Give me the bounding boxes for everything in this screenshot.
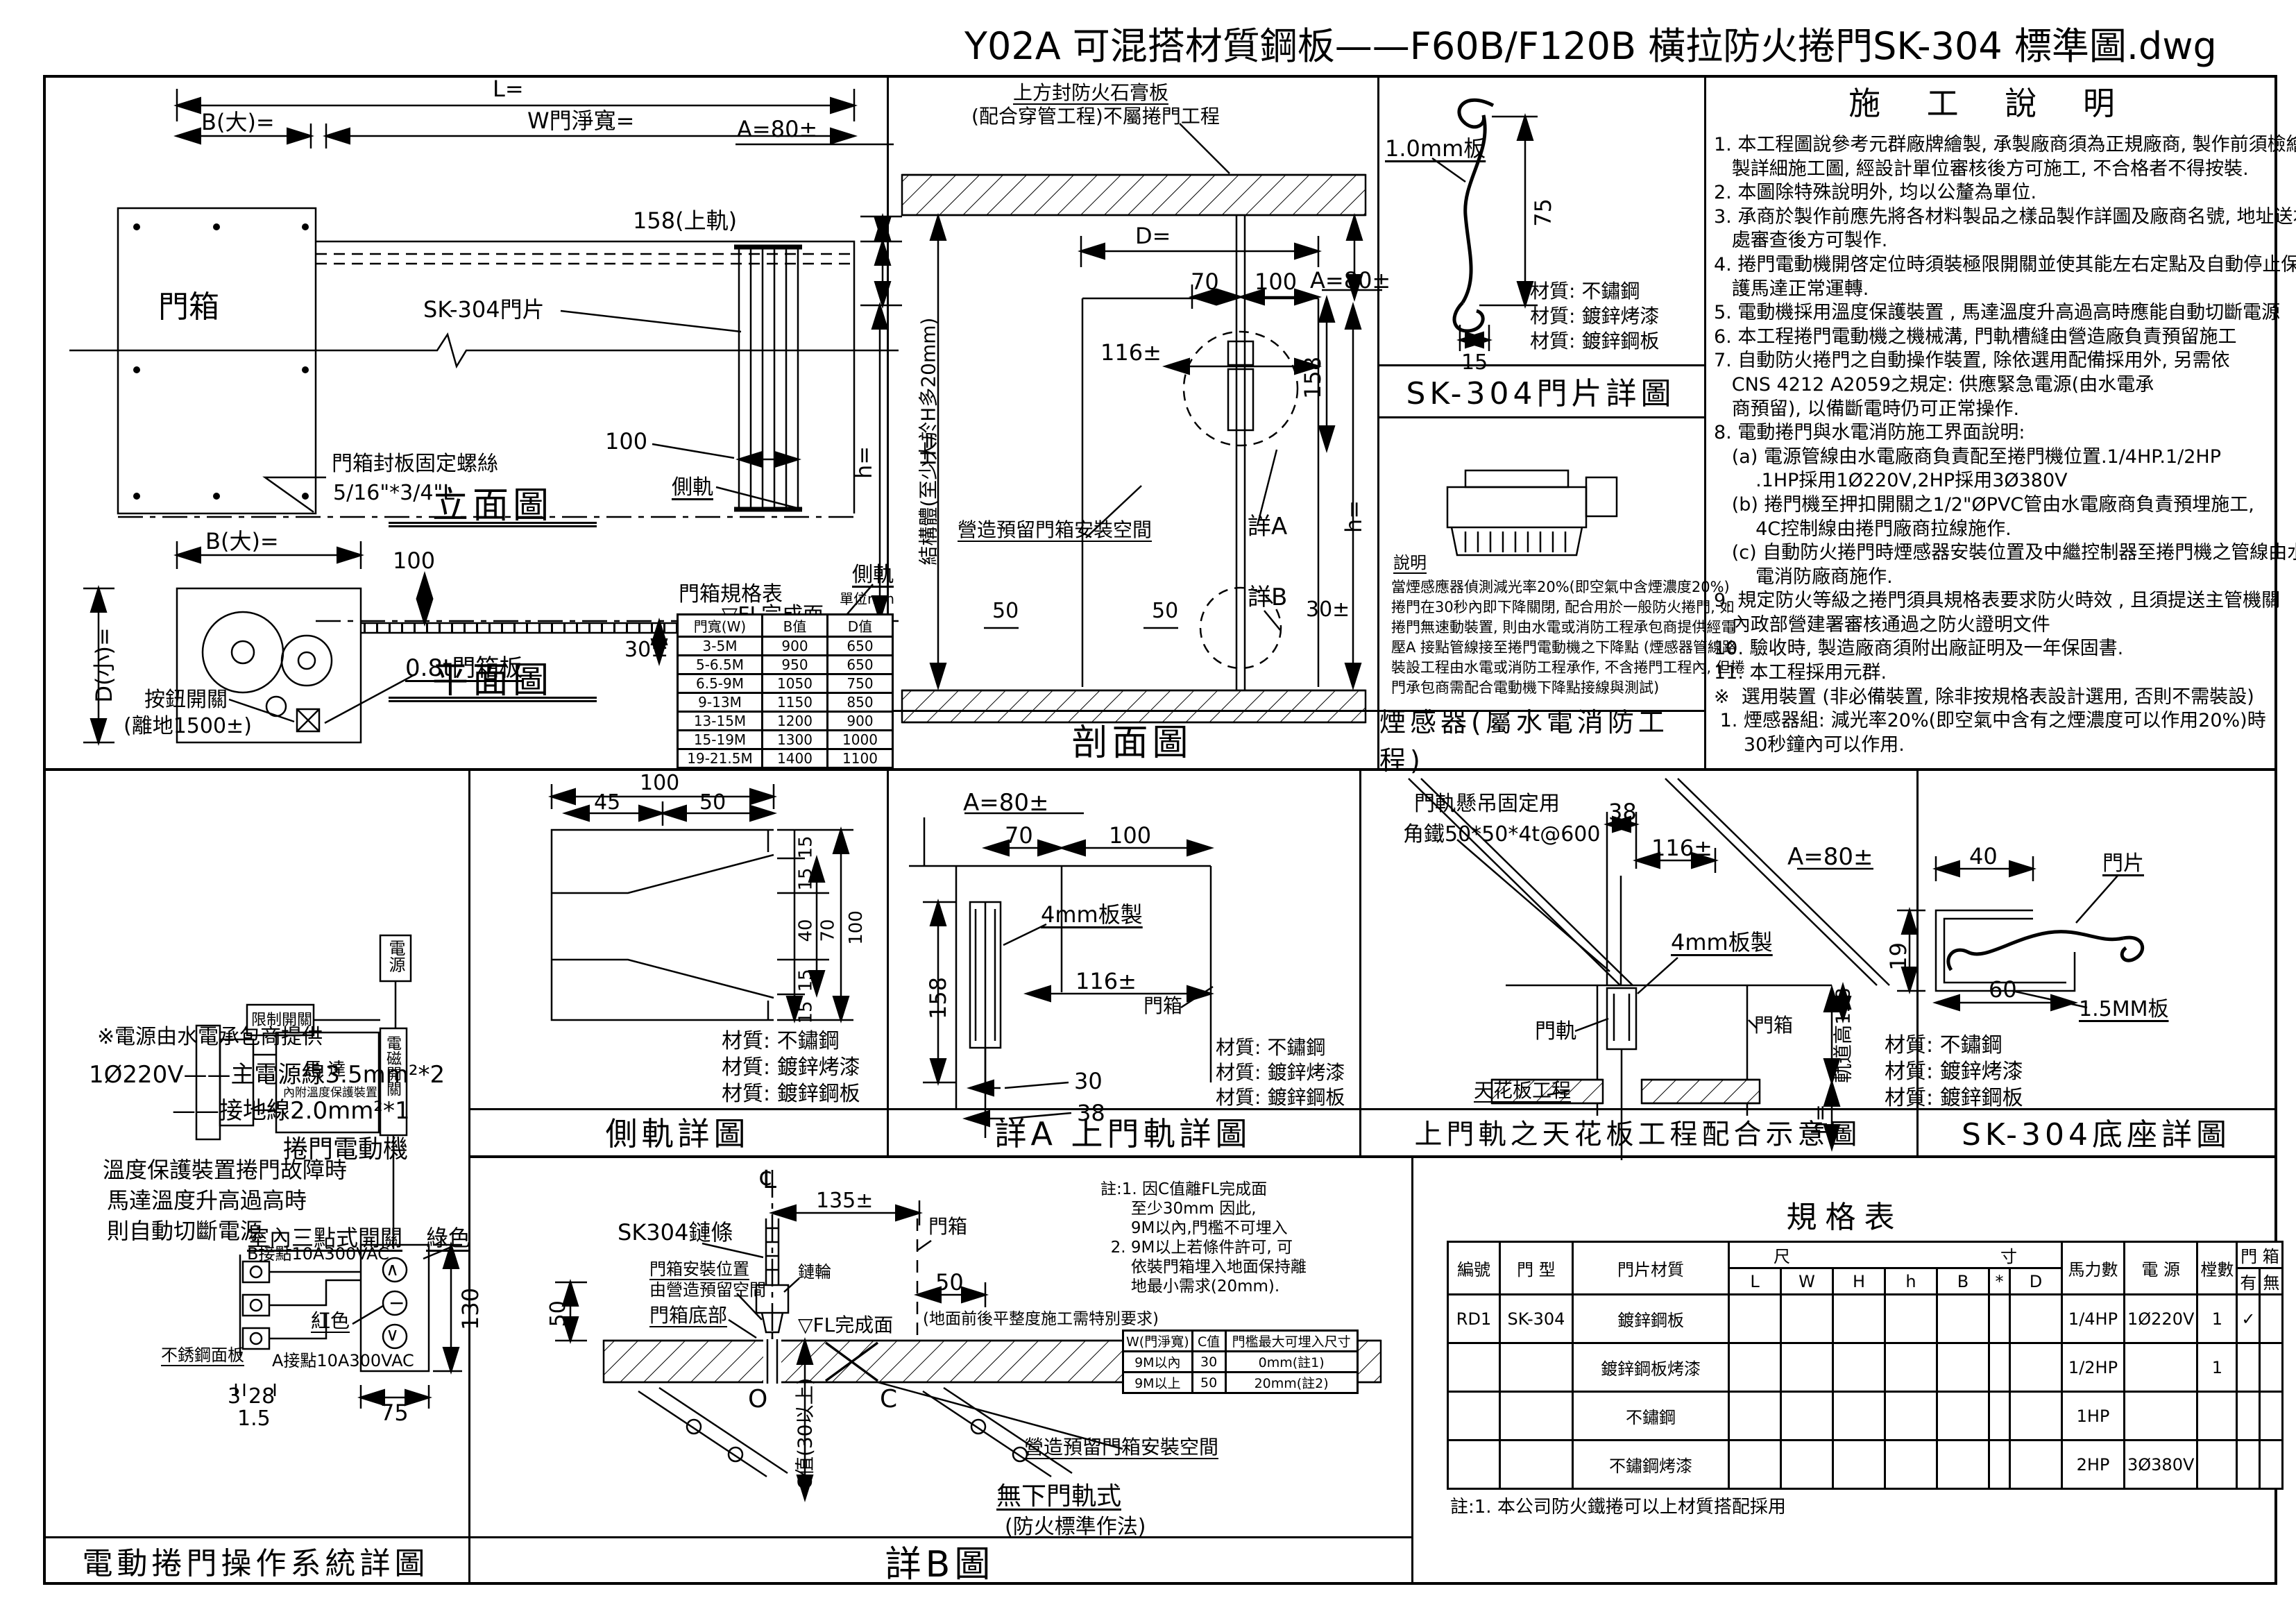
notes-l17: (c) 自動防火捲門時煙感器安裝位置及中繼控制器至捲門機之管線由水 bbox=[1714, 542, 2296, 563]
notes-l7: 5. 電動機採用溫度保護裝置 , 馬達溫度升高過高時應能自動切斷電源 bbox=[1714, 302, 2280, 323]
ceil-label-ceiling: 天花板工程 bbox=[1474, 1080, 1571, 1102]
slat-mat-3: 材質: 鍍鋅鋼板 bbox=[1530, 330, 1659, 352]
elev-dim-b: B(大)= bbox=[201, 110, 275, 135]
motor-label-limit: 限制開關 bbox=[251, 1012, 312, 1029]
spec-cell: 1/4HP bbox=[2062, 1295, 2125, 1343]
ceil-label-4mm: 4mm板製 bbox=[1671, 930, 1773, 955]
slat-mat-2: 材質: 鍍鋅烤漆 bbox=[1530, 305, 1659, 328]
box-cell: 19-21.5M bbox=[678, 749, 763, 768]
rail-d40: 40 bbox=[797, 919, 817, 942]
db-label-space: 營造預留門箱安裝空間 bbox=[1024, 1436, 1218, 1459]
db-th: 門檻最大可埋入尺寸 bbox=[1225, 1331, 1357, 1352]
notes-l21: 10. 驗收時, 製造廠商須附出廠証明及一年保固書. bbox=[1714, 638, 2123, 659]
motor-dim-28: 28 bbox=[248, 1385, 275, 1409]
spec-cell: 鍍鋅鋼板烤漆 bbox=[1573, 1343, 1729, 1392]
notes-l9: 7. 自動防火捲門之自動操作裝置, 除依選用配備採用外, 另需依 bbox=[1714, 350, 2230, 371]
motor-caption: 電動捲門操作系統詳圖 bbox=[45, 1538, 466, 1583]
base-dim-60: 60 bbox=[1989, 977, 2017, 1003]
box-cell: 1400 bbox=[763, 749, 828, 768]
spec-table: 編號 門 型 門片材質 尺寸 馬力數 電 源 樘數 門 箱 L W H h B … bbox=[1447, 1241, 2284, 1490]
ceil-dim-track: 軌道高158 bbox=[1832, 987, 1855, 1082]
motor-label-panel: 不銹鋼面板 bbox=[161, 1346, 244, 1366]
divider bbox=[468, 1155, 2277, 1158]
spec-sub-d: D bbox=[2010, 1268, 2062, 1295]
box-cell: 650 bbox=[828, 656, 893, 674]
rail-d70: 70 bbox=[819, 919, 840, 942]
siderail-caption: 側軌詳圖 bbox=[470, 1110, 885, 1153]
sect-dim-158: 158 bbox=[1300, 357, 1326, 399]
db-note-1: 至少30mm 因此, bbox=[1100, 1200, 1257, 1218]
ceil-dim-38: 38 bbox=[1608, 799, 1637, 825]
spec-cell: 1/2HP bbox=[2062, 1343, 2125, 1392]
sect-label-space: 營造預留門箱安裝空間 bbox=[958, 519, 1152, 541]
notes-l18: 電消防廠商施作. bbox=[1714, 566, 1893, 588]
notes-l15: (b) 捲門機至押扣開關之1/2"ØPVC管由水電廠商負責預埋施工, bbox=[1714, 494, 2254, 516]
sect-dim-h: h= bbox=[1341, 500, 1367, 533]
spec-sub-l: L bbox=[1729, 1268, 1781, 1295]
db-th: W(門淨寬) bbox=[1123, 1331, 1193, 1352]
db-label-chain: SK304鏈條 bbox=[618, 1220, 733, 1246]
spec-cell: 鍍鋅鋼板 bbox=[1573, 1295, 1729, 1343]
spec-sub-hh: h bbox=[1885, 1268, 1937, 1295]
sect-detail-a: 詳A bbox=[1248, 513, 1287, 541]
slat-caption: SK-304門片詳圖 bbox=[1379, 366, 1702, 415]
base-caption: SK-304底座詳圖 bbox=[1919, 1110, 2274, 1153]
rail-mat-1: 材質: 不鏽鋼 bbox=[722, 1030, 840, 1054]
elev-dim-w: W門淨寬= bbox=[527, 108, 634, 134]
db-cell: 50 bbox=[1192, 1373, 1225, 1393]
notes-l16: 4C控制線由捲門廠商拉線施作. bbox=[1714, 518, 2012, 540]
smoke-line-5: 裝設工程由水電或消防工程承作, 不含捲門工程內, 但捲 bbox=[1391, 658, 1745, 678]
spec-h-dim2: 寸 bbox=[2000, 1243, 2017, 1267]
smoke-note-title: 說明 bbox=[1393, 554, 1427, 573]
smoke-line-2: 捲門在30秒內即下降關閉, 配合用於一般防火捲門, 如 bbox=[1391, 597, 1734, 618]
spec-h-dim1: 尺 bbox=[1774, 1243, 1790, 1267]
db-label-pos1: 門箱安裝位置 bbox=[649, 1260, 749, 1280]
rail-mat-3: 材質: 鍍鋅鋼板 bbox=[722, 1082, 860, 1107]
sect-dim-50b: 50 bbox=[1152, 600, 1178, 624]
rail-dim-45: 45 bbox=[594, 791, 620, 815]
da-dim-a: A=80± bbox=[963, 790, 1049, 817]
box-cell: 1150 bbox=[763, 693, 828, 712]
db-note-4: 依裝門箱埋入地面保持離 bbox=[1100, 1258, 1307, 1276]
ceil-dim-116: 116± bbox=[1651, 835, 1712, 861]
slat-mat-1: 材質: 不鏽鋼 bbox=[1530, 280, 1640, 303]
spec-h-qty: 樘數 bbox=[2197, 1242, 2237, 1295]
spec-h-box: 門 箱 bbox=[2237, 1242, 2283, 1268]
sect-dim-116: 116± bbox=[1100, 340, 1162, 366]
box-spec-table: 門寬(W)B值D值 3-5M900650 5-6.5M950650 6.5-9M… bbox=[677, 613, 894, 769]
base-mat-2: 材質: 鍍鋅烤漆 bbox=[1885, 1060, 2023, 1085]
plan-dim-100: 100 bbox=[393, 548, 435, 574]
db-note-5: 地最小需求(20mm). bbox=[1100, 1277, 1279, 1295]
divider bbox=[468, 768, 470, 1585]
box-cell: 650 bbox=[828, 637, 893, 656]
notes-l12: 8. 電動捲門與水電消防施工界面說明: bbox=[1714, 422, 2025, 443]
db-note-3: 2. 9M以上若條件許可, 可 bbox=[1100, 1239, 1293, 1257]
motor-dim-75: 75 bbox=[380, 1400, 409, 1426]
spec-sub-x: * bbox=[1989, 1268, 2010, 1295]
divider bbox=[1377, 75, 1379, 768]
motor-temp2: 馬達溫度升高過高時 bbox=[107, 1188, 307, 1214]
spec-h-hp: 馬力數 bbox=[2062, 1242, 2125, 1295]
db-th: C值 bbox=[1192, 1331, 1225, 1352]
elev-label-siderail: 側軌 bbox=[672, 476, 713, 500]
box-cell: 9-13M bbox=[678, 693, 763, 712]
detail-a-caption: 詳A 上門軌詳圖 bbox=[889, 1110, 1357, 1153]
db-note-2: 9M以內,門檻不可埋入 bbox=[1100, 1219, 1288, 1237]
smoke-line-1: 當煙感應器偵測減光率20%(即空氣中含煙濃度20%) bbox=[1391, 577, 1730, 597]
spec-title: 規格表 bbox=[1413, 1196, 2276, 1232]
db-label-method2: (防火標準作法) bbox=[1005, 1515, 1146, 1540]
rail-d100: 100 bbox=[847, 910, 867, 945]
sect-note2: (配合穿管工程)不屬捲門工程 bbox=[971, 105, 1220, 128]
box-th: B值 bbox=[763, 615, 828, 637]
base-dim-40: 40 bbox=[1969, 844, 1998, 869]
notes-l3: 3. 承商於製作前應先將各材料製品之樣品製作詳圖及廠商名號, 地址送本 bbox=[1714, 206, 2296, 228]
da-dim-70: 70 bbox=[1005, 823, 1033, 849]
motor-label-mag: 電磁開關 bbox=[384, 1035, 400, 1096]
elevation-caption: 立面圖 bbox=[389, 486, 597, 527]
box-th: D值 bbox=[828, 615, 893, 637]
motor-label-b: B接點10A300VAC bbox=[247, 1245, 389, 1264]
notes-body: 1. 本工程圖說參考元群廠牌繪製, 承製廠商須為正規廠商, 製作前須檢繪 製詳細… bbox=[1714, 133, 2296, 757]
ceil-hang1: 門軌懸吊固定用 bbox=[1414, 792, 1560, 817]
db-dim-50r: 50 bbox=[935, 1270, 964, 1295]
base-mat-1: 材質: 不鏽鋼 bbox=[1885, 1034, 2002, 1058]
spec-h-no: 編號 bbox=[1448, 1242, 1500, 1295]
motor-dim-15: 1.5 bbox=[237, 1407, 271, 1431]
elev-dim-a: A=80± bbox=[737, 117, 817, 142]
spec-cell: 3Ø380V bbox=[2125, 1441, 2197, 1489]
ceiling-caption: 上門軌之天花板工程配合示意圖 bbox=[1361, 1110, 1914, 1153]
motor-label-motor2: 內附溫度保護裝置 bbox=[283, 1087, 377, 1101]
box-cell: 1200 bbox=[763, 712, 828, 731]
spec-h-no2: 無 bbox=[2260, 1268, 2283, 1295]
db-label-fl: ▽FL完成面 bbox=[798, 1314, 893, 1336]
spec-cell: 1 bbox=[2197, 1343, 2237, 1392]
spec-h-dim: 尺寸 bbox=[1729, 1242, 2062, 1268]
box-cell: 900 bbox=[828, 712, 893, 731]
rail-d15d: 15 bbox=[797, 1001, 817, 1023]
ceil-hang2: 角鐵50*50*4t@600 bbox=[1403, 823, 1600, 847]
da-dim-100: 100 bbox=[1109, 823, 1151, 849]
rail-d15c: 15 bbox=[797, 969, 817, 992]
spec-sub-b: B bbox=[1937, 1268, 1989, 1295]
notes-l6: 護馬達正常運轉. bbox=[1714, 278, 1869, 300]
box-cell: 13-15M bbox=[678, 712, 763, 731]
db-label-c: C bbox=[880, 1385, 897, 1413]
notes-l14: .1HP採用1Ø220V,2HP採用3Ø380V bbox=[1714, 470, 2068, 491]
db-notes: 註:1. 因C值離FL完成面 至少30mm 因此, 9M以內,門檻不可埋入 2.… bbox=[1100, 1180, 1307, 1296]
spec-cell: 1Ø220V bbox=[2125, 1295, 2197, 1343]
notes-l23: ※ 選用裝置 (非必備裝置, 除非按規格表設計選用, 否則不需裝設) bbox=[1714, 686, 2254, 708]
notes-l1: 製詳細施工圖, 經設計單位審核後方可施工, 不合格者不得按裝. bbox=[1714, 158, 2249, 180]
box-cell: 5-6.5M bbox=[678, 656, 763, 674]
motor-label-green: 綠色 bbox=[426, 1225, 470, 1251]
elev-dim-l: L= bbox=[493, 76, 524, 102]
rail-dim-50: 50 bbox=[699, 791, 726, 815]
elev-label-slat: SK-304門片 bbox=[423, 297, 545, 323]
smoke-line-4: 壓A 接點管線接至捲門電動機之下降點 (煙感器管線路 bbox=[1391, 638, 1737, 658]
base-label-15: 1.5MM板 bbox=[2079, 998, 2168, 1022]
motor-power3: ——接地線2.0mm²*1 bbox=[172, 1098, 410, 1125]
box-cell: 15-19M bbox=[678, 731, 763, 749]
db-label-method1: 無下門軌式 bbox=[996, 1482, 1121, 1511]
base-mat-3: 材質: 鍍鋅鋼板 bbox=[1885, 1087, 2023, 1111]
box-cell: 3-5M bbox=[678, 637, 763, 656]
db-label-flnote: (地面前後平整度施工需特別要求) bbox=[923, 1310, 1159, 1328]
rail-d15a: 15 bbox=[797, 835, 817, 858]
slat-label-plate: 1.0mm板 bbox=[1385, 136, 1486, 162]
box-cell: 6.5-9M bbox=[678, 674, 763, 693]
da-dim-116: 116± bbox=[1075, 969, 1137, 994]
sect-dim-70: 70 bbox=[1191, 269, 1219, 295]
notes-l5: 4. 捲門電動機開啓定位時須裝極限開關並使其能左右定點及自動停止保 bbox=[1714, 254, 2296, 275]
elev-dim-30: 30± bbox=[624, 638, 668, 663]
spec-cell: ✓ bbox=[2237, 1295, 2260, 1343]
da-dim-30: 30 bbox=[1074, 1069, 1103, 1094]
box-cell: 1000 bbox=[828, 731, 893, 749]
spec-h-mat: 門片材質 bbox=[1573, 1242, 1729, 1295]
sect-dim-a: A=80± bbox=[1310, 268, 1391, 294]
db-cell: 9M以上 bbox=[1123, 1373, 1193, 1393]
sect-dim-50a: 50 bbox=[992, 600, 1019, 624]
notes-l24: 1. 煙感器組: 減光率20%(即空氣中含有之煙濃度可以作用20%)時 bbox=[1714, 710, 2266, 731]
motor-label-red: 紅色 bbox=[311, 1310, 350, 1332]
db-cell: 20mm(註2) bbox=[1225, 1373, 1357, 1393]
da-dim-158: 158 bbox=[926, 977, 951, 1019]
detail-b-caption: 詳B圖 bbox=[470, 1538, 1409, 1583]
smoke-line-6: 門承包商需配合電動機下降點接線與測試) bbox=[1391, 678, 1659, 698]
motor-label-a: A接點10A300VAC bbox=[272, 1352, 414, 1371]
box-cell: 900 bbox=[763, 637, 828, 656]
elev-label-screw: 門箱封板固定螺絲 bbox=[332, 452, 498, 477]
box-table-unit: 單位mm bbox=[840, 591, 894, 607]
ceil-label-rail: 門軌 bbox=[1535, 1020, 1576, 1044]
spec-cell: SK-304 bbox=[1500, 1295, 1573, 1343]
da-mat-3: 材質: 鍍鋅鋼板 bbox=[1216, 1087, 1345, 1109]
caption-line bbox=[1377, 416, 1704, 418]
base-label-slat: 門片 bbox=[2102, 852, 2144, 876]
motor-dim-3: 3 bbox=[228, 1385, 241, 1409]
elev-label-box: 門箱 bbox=[158, 290, 219, 325]
elev-dim-h: h= bbox=[851, 446, 877, 479]
base-dim-19: 19 bbox=[1886, 942, 1912, 971]
section-caption: 剖面圖 bbox=[889, 712, 1375, 766]
motor-label-power: 電源 bbox=[387, 940, 404, 973]
db-dim-135: 135± bbox=[816, 1189, 873, 1214]
notes-l4: 處審查後方可製作. bbox=[1714, 230, 1887, 251]
notes-l11: 商預留), 以備斷電時仍可正常操作. bbox=[1714, 398, 2019, 420]
plan-label-switch: 按鈕開關 bbox=[144, 688, 228, 713]
box-cell: 850 bbox=[828, 693, 893, 712]
notes-l0: 1. 本工程圖說參考元群廠牌繪製, 承製廠商須為正規廠商, 製作前須檢繪 bbox=[1714, 134, 2296, 155]
da-label-4mm: 4mm板製 bbox=[1041, 902, 1143, 928]
ceil-label-box: 門箱 bbox=[1754, 1014, 1793, 1037]
db-cell: 0mm(註1) bbox=[1225, 1352, 1357, 1373]
sheet-title: Y02A 可混搭材質鋼板——F60B/F120B 橫拉防火捲門SK-304 標準… bbox=[964, 25, 2217, 68]
db-label-bottom: 門箱底部 bbox=[649, 1305, 727, 1327]
plan-caption: 平面圖 bbox=[389, 661, 597, 702]
motor-label-motor: 馬 達 bbox=[304, 1060, 346, 1081]
notes-title: 施 工 說 明 bbox=[1706, 80, 2275, 122]
db-label-o: O bbox=[748, 1385, 767, 1413]
sect-dim-100: 100 bbox=[1255, 269, 1297, 295]
spec-cell: RD1 bbox=[1448, 1295, 1500, 1343]
notes-l22: 11. 本工程採用元群. bbox=[1714, 662, 1887, 683]
spec-cell: 不鏽鋼烤漆 bbox=[1573, 1441, 1729, 1489]
ceil-dim-a: A=80± bbox=[1787, 844, 1873, 871]
da-label-box: 門箱 bbox=[1143, 995, 1182, 1017]
elev-dim-rail: 158(上軌) bbox=[633, 208, 737, 234]
sect-note1: 上方封防火石膏板 bbox=[1013, 82, 1168, 104]
rail-mat-2: 材質: 鍍鋅烤漆 bbox=[722, 1056, 860, 1080]
spec-note: 註:1. 本公司防火鐵捲可以上材質搭配採用 bbox=[1450, 1497, 1786, 1518]
divider bbox=[43, 768, 2277, 771]
db-table: W(門淨寬)C值門檻最大可埋入尺寸 9M以內300mm(註1) 9M以上5020… bbox=[1122, 1329, 1359, 1394]
db-dim-50l: 50 bbox=[547, 1300, 571, 1327]
spec-h-type: 門 型 bbox=[1500, 1242, 1573, 1295]
switch-up-icon: ∧ bbox=[386, 1260, 399, 1281]
plan-label-switch2: (離地1500±) bbox=[124, 715, 252, 739]
box-cell: 950 bbox=[763, 656, 828, 674]
slat-dim-75: 75 bbox=[1531, 198, 1556, 227]
db-cell: 30 bbox=[1192, 1352, 1225, 1373]
spec-cell: 2HP bbox=[2062, 1441, 2125, 1489]
db-note-0: 註:1. 因C值離FL完成面 bbox=[1100, 1180, 1267, 1198]
spec-cell: 不鏽鋼 bbox=[1573, 1392, 1729, 1441]
rail-dim-100t: 100 bbox=[640, 772, 679, 796]
divider bbox=[1359, 768, 1361, 1155]
da-mat-2: 材質: 鍍鋅烤漆 bbox=[1216, 1062, 1345, 1084]
db-label-pos2: 由營造預留空間 bbox=[649, 1281, 766, 1300]
sect-dim-d: D= bbox=[1135, 223, 1171, 249]
spec-cell: 1 bbox=[2197, 1295, 2237, 1343]
box-table-title: 門箱規格表 bbox=[679, 583, 783, 607]
box-cell: 1050 bbox=[763, 674, 828, 693]
db-dim-c: C值(30以上) bbox=[794, 1378, 816, 1490]
smoke-caption: 煙感器(屬水電消防工程) bbox=[1379, 712, 1702, 766]
notes-l13: (a) 電源管線由水電廠商負責配至捲門機位置.1/4HP.1/2HP bbox=[1714, 446, 2221, 468]
cad-sheet: Y02A 可混搭材質鋼板——F60B/F120B 橫拉防火捲門SK-304 標準… bbox=[0, 0, 2296, 1623]
spec-h-yes: 有 bbox=[2237, 1268, 2260, 1295]
box-th: 門寬(W) bbox=[678, 615, 763, 637]
notes-l20: 內政部營建署審核通過之防火證明文件 bbox=[1714, 614, 2050, 636]
box-cell: 1300 bbox=[763, 731, 828, 749]
box-cell: 1100 bbox=[828, 749, 893, 768]
spec-sub-h: H bbox=[1833, 1268, 1885, 1295]
smoke-line-3: 捲門無速動裝置, 則由水電或消防工程承包商提供經電 bbox=[1391, 618, 1735, 638]
db-label-sprocket: 鏈輪 bbox=[798, 1263, 831, 1282]
db-cell: 9M以內 bbox=[1123, 1352, 1193, 1373]
spec-cell: 1HP bbox=[2062, 1392, 2125, 1441]
motor-temp3: 則自動切斷電源 bbox=[107, 1218, 262, 1244]
sect-dim-30: 30± bbox=[1306, 598, 1350, 622]
switch-down-icon: ∨ bbox=[386, 1325, 399, 1346]
plan-dim-b: B(大)= bbox=[205, 529, 279, 554]
db-label-box: 門箱 bbox=[928, 1216, 967, 1238]
sect-detail-b: 詳B bbox=[1248, 584, 1287, 611]
box-cell: 750 bbox=[828, 674, 893, 693]
notes-l10: CNS 4212 A2059之規定: 供應緊急電源(由水電承 bbox=[1714, 374, 2154, 396]
notes-l25: 30秒鐘內可以作用. bbox=[1714, 734, 1905, 756]
plan-dim-d: D(小)= bbox=[92, 627, 117, 702]
spec-h-power: 電 源 bbox=[2125, 1242, 2197, 1295]
switch-stop-icon: − bbox=[389, 1292, 405, 1314]
notes-l19: 9. 規定防火等級之捲門須具規格表要求防火時效 , 且須提送主管機關 bbox=[1714, 590, 2280, 611]
spec-sub-w: W bbox=[1781, 1268, 1833, 1295]
sect-dim-H: H= bbox=[918, 432, 942, 466]
da-mat-1: 材質: 不鏽鋼 bbox=[1216, 1037, 1325, 1059]
rail-d15b: 15 bbox=[797, 867, 817, 890]
db-centerline-icon: ℄ bbox=[760, 1166, 776, 1194]
divider bbox=[887, 768, 889, 1155]
motor-temp1: 溫度保護裝置捲門故障時 bbox=[103, 1157, 347, 1183]
elev-dim-100: 100 bbox=[605, 429, 647, 454]
motor-dim-130: 130 bbox=[458, 1288, 484, 1330]
notes-l2: 2. 本圖除特殊說明外, 均以公釐為單位. bbox=[1714, 182, 2036, 203]
plan-label-siderail: 側軌 bbox=[852, 563, 894, 588]
notes-l8: 6. 本工程捲門電動機之機械溝, 門軌槽縫由營造廠負責預留施工 bbox=[1714, 326, 2237, 348]
